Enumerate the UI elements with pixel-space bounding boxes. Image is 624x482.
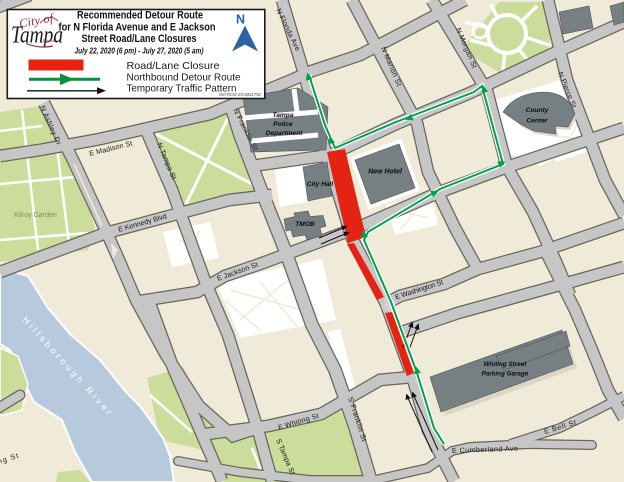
svg-text:for N Florida Avenue and E Jac: for N Florida Avenue and E Jackson xyxy=(59,21,216,33)
svg-text:Ref:RCM-20-0001751: Ref:RCM-20-0001751 xyxy=(219,92,262,97)
svg-text:Road/Lane Closure: Road/Lane Closure xyxy=(127,61,220,72)
svg-text:Whiting Street: Whiting Street xyxy=(484,361,528,368)
svg-text:Center: Center xyxy=(527,118,548,125)
svg-text:Street Road/Lane Closures: Street Road/Lane Closures xyxy=(82,33,197,45)
svg-text:New Hotel: New Hotel xyxy=(368,169,403,176)
svg-text:Northbound Detour Route: Northbound Detour Route xyxy=(127,72,241,83)
svg-text:Parking Garage: Parking Garage xyxy=(482,371,529,378)
svg-text:Department: Department xyxy=(266,130,303,137)
svg-text:Tampa: Tampa xyxy=(272,112,293,119)
svg-text:Recommended Detour Route: Recommended Detour Route xyxy=(77,9,203,21)
svg-text:City Hall: City Hall xyxy=(307,181,334,188)
svg-text:TMOB: TMOB xyxy=(295,221,315,228)
svg-text:Kilroy Garden: Kilroy Garden xyxy=(14,212,57,219)
svg-text:Tampa: Tampa xyxy=(11,23,63,49)
svg-text:County: County xyxy=(526,107,549,114)
svg-text:Florida: Florida xyxy=(42,38,56,43)
svg-text:N: N xyxy=(236,13,245,27)
svg-text:Police: Police xyxy=(273,121,293,128)
svg-text:July 22, 2020 (6 pm) - July 27: July 22, 2020 (6 pm) - July 27, 2020 (5 … xyxy=(75,46,204,56)
